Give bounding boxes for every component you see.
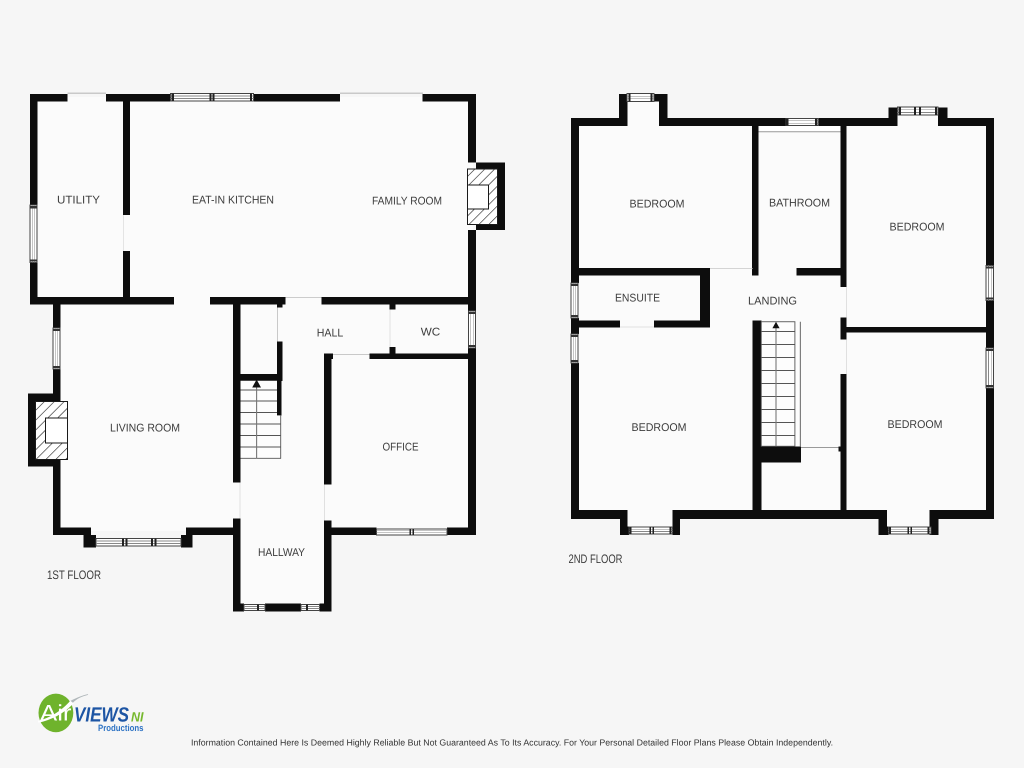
svg-text:HALLWAY: HALLWAY	[258, 547, 305, 559]
svg-text:BEDROOM: BEDROOM	[630, 199, 685, 211]
svg-text:OFFICE: OFFICE	[383, 442, 419, 454]
svg-text:HALL: HALL	[317, 328, 344, 340]
svg-text:LANDING: LANDING	[748, 296, 797, 308]
svg-text:UTILITY: UTILITY	[57, 195, 101, 207]
svg-text:LIVING ROOM: LIVING ROOM	[110, 423, 180, 435]
svg-text:FAMILY ROOM: FAMILY ROOM	[372, 196, 442, 208]
svg-text:Information Contained Here Is: Information Contained Here Is Deemed Hig…	[191, 738, 833, 748]
svg-text:BEDROOM: BEDROOM	[890, 222, 945, 234]
svg-text:Productions: Productions	[98, 723, 144, 733]
svg-text:Air: Air	[40, 701, 72, 726]
svg-text:BATHROOM: BATHROOM	[769, 198, 830, 210]
svg-text:WC: WC	[421, 327, 441, 339]
svg-text:2ND FLOOR: 2ND FLOOR	[569, 552, 623, 566]
svg-text:1ST FLOOR: 1ST FLOOR	[47, 568, 101, 582]
svg-text:EAT-IN KITCHEN: EAT-IN KITCHEN	[192, 195, 274, 207]
svg-text:BEDROOM: BEDROOM	[888, 419, 943, 431]
svg-text:ENSUITE: ENSUITE	[615, 293, 660, 305]
svg-text:BEDROOM: BEDROOM	[632, 422, 687, 434]
